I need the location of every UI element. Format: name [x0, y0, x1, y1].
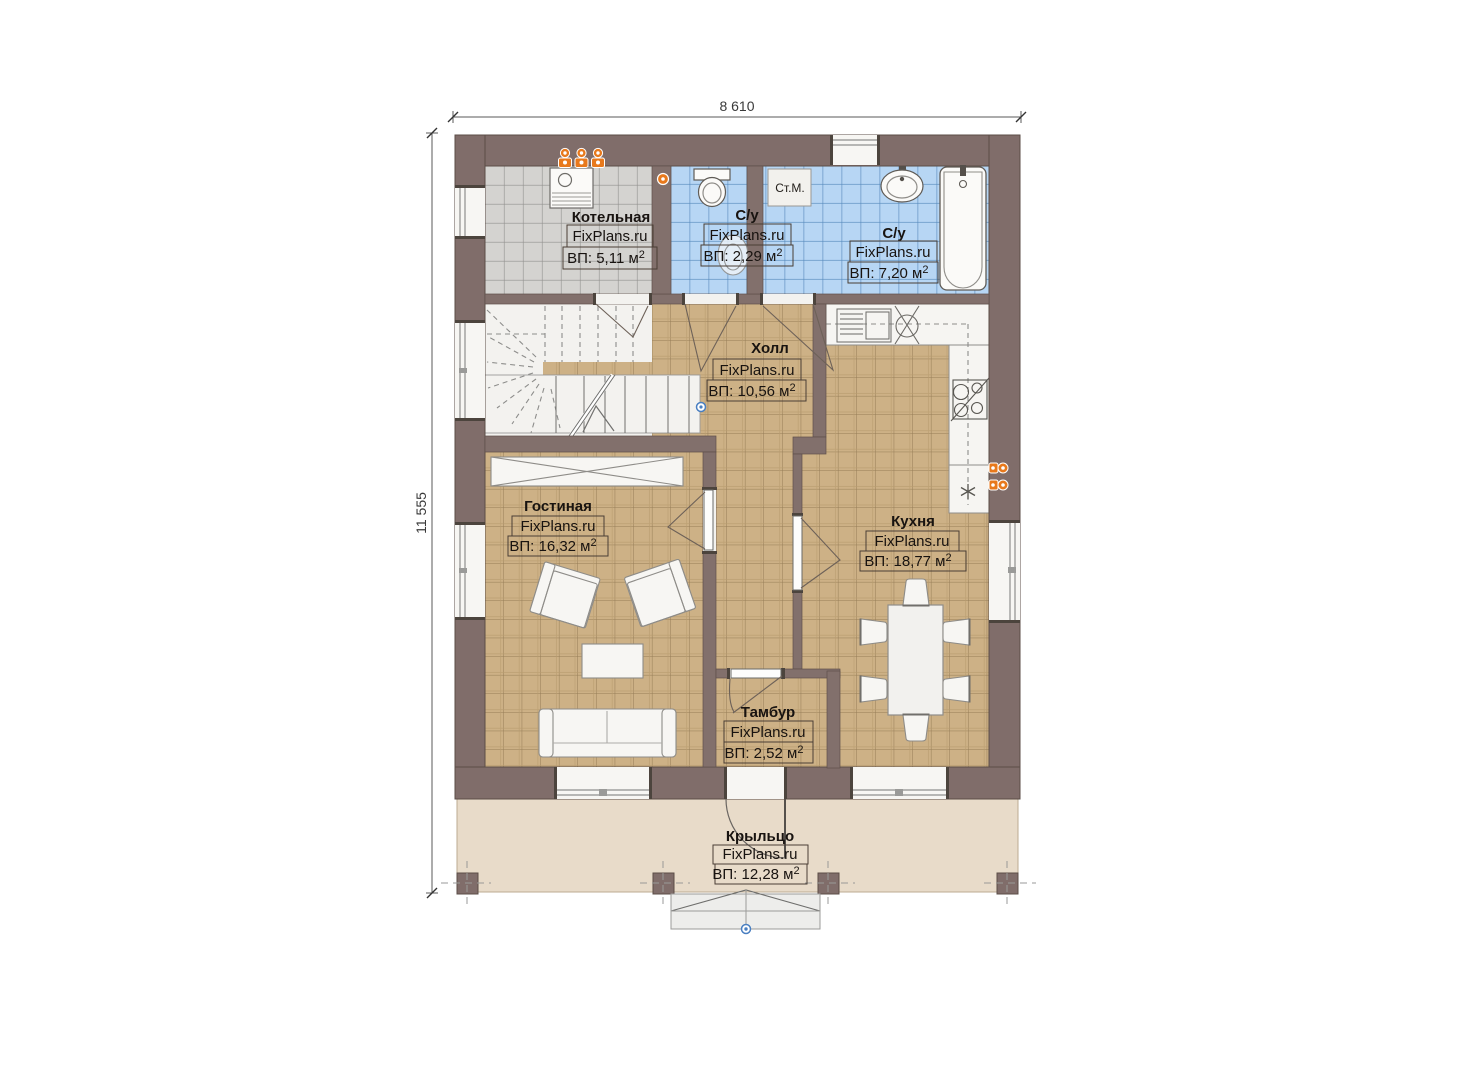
svg-text:ВП: 2,29 м2: ВП: 2,29 м2: [704, 247, 783, 265]
svg-text:FixPlans.ru: FixPlans.ru: [874, 533, 949, 550]
svg-text:FixPlans.ru: FixPlans.ru: [572, 228, 647, 245]
svg-text:FixPlans.ru: FixPlans.ru: [719, 362, 794, 379]
svg-text:FixPlans.ru: FixPlans.ru: [730, 724, 805, 741]
svg-text:FixPlans.ru: FixPlans.ru: [520, 518, 595, 535]
svg-text:Тамбур: Тамбур: [741, 704, 795, 721]
svg-text:ВП: 12,28 м2: ВП: 12,28 м2: [712, 865, 799, 883]
svg-text:8 610: 8 610: [719, 98, 754, 114]
svg-text:С/у: С/у: [882, 225, 906, 242]
svg-text:Кухня: Кухня: [891, 513, 935, 530]
svg-text:FixPlans.ru: FixPlans.ru: [709, 227, 784, 244]
svg-text:FixPlans.ru: FixPlans.ru: [855, 244, 930, 261]
svg-text:ВП: 2,52 м2: ВП: 2,52 м2: [725, 744, 804, 762]
svg-text:Холл: Холл: [751, 340, 789, 357]
svg-text:ВП: 18,77 м2: ВП: 18,77 м2: [864, 552, 951, 570]
svg-text:ВП: 16,32 м2: ВП: 16,32 м2: [509, 537, 596, 555]
svg-text:ВП: 7,20 м2: ВП: 7,20 м2: [850, 264, 929, 282]
svg-text:ВП: 5,11 м2: ВП: 5,11 м2: [567, 249, 645, 267]
svg-text:Крыльцо: Крыльцо: [726, 828, 794, 845]
svg-text:Котельная: Котельная: [572, 209, 651, 226]
svg-text:С/у: С/у: [735, 207, 759, 224]
svg-text:ВП: 10,56 м2: ВП: 10,56 м2: [708, 382, 795, 400]
svg-text:FixPlans.ru: FixPlans.ru: [722, 846, 797, 863]
svg-text:Ст.М.: Ст.М.: [775, 181, 805, 195]
svg-text:11 555: 11 555: [413, 492, 429, 534]
svg-text:Гостиная: Гостиная: [524, 498, 592, 515]
